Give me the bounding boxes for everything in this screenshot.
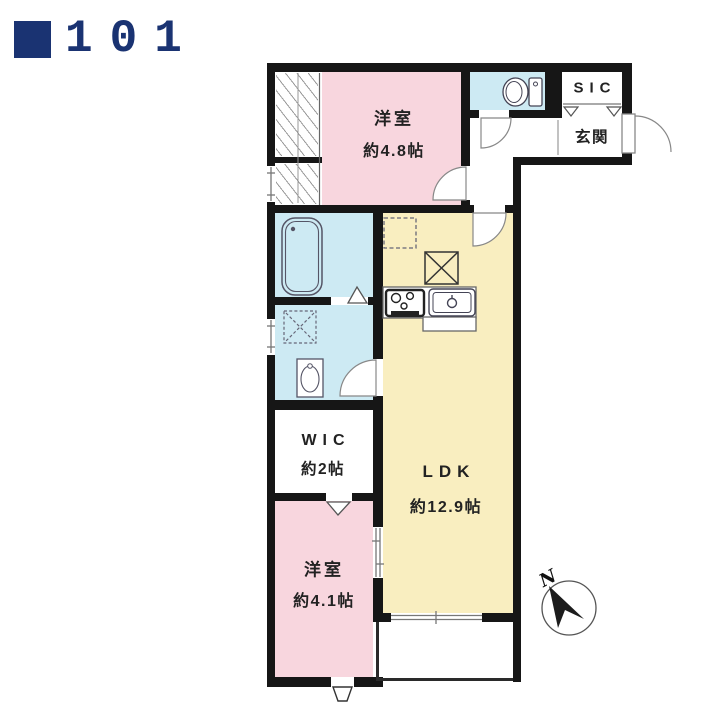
bedroom2-name-label: 洋室 <box>304 556 344 581</box>
bathroom-bifold-icon <box>348 287 367 303</box>
refrigerator-space-icon <box>384 218 416 248</box>
wic-size-label: 約2帖 <box>301 457 345 479</box>
duct-box-icon <box>425 252 458 284</box>
ldk-name-label: LDK <box>423 462 476 482</box>
compass-north-label: N <box>535 565 562 592</box>
wic-name-label: WIC <box>301 432 350 450</box>
bedroom1-size-label: 約4.8帖 <box>363 137 425 161</box>
bedroom2-window-sill <box>333 687 352 701</box>
closet-front-line <box>298 73 320 205</box>
stove-icon <box>386 290 424 316</box>
washer-pan-icon <box>284 311 316 343</box>
sink-icon <box>429 289 475 316</box>
sic-opening-arrows <box>564 107 621 116</box>
entrance-door-icon <box>622 114 671 153</box>
toilet-icon <box>503 78 542 106</box>
floor-plan: 101 <box>0 0 709 720</box>
vanity-icon <box>297 359 323 397</box>
wic-door-arrow <box>327 502 350 515</box>
bedroom2-size-label: 約4.1帖 <box>293 587 355 611</box>
bathtub-icon <box>282 218 322 295</box>
ldk-size-label: 約12.9帖 <box>410 493 482 517</box>
sic-label: SIC <box>573 80 616 97</box>
compass-icon: N <box>535 565 596 635</box>
entrance-label: 玄関 <box>575 125 609 147</box>
plan-overlay: N <box>0 0 709 720</box>
bedroom1-name-label: 洋室 <box>374 105 414 130</box>
